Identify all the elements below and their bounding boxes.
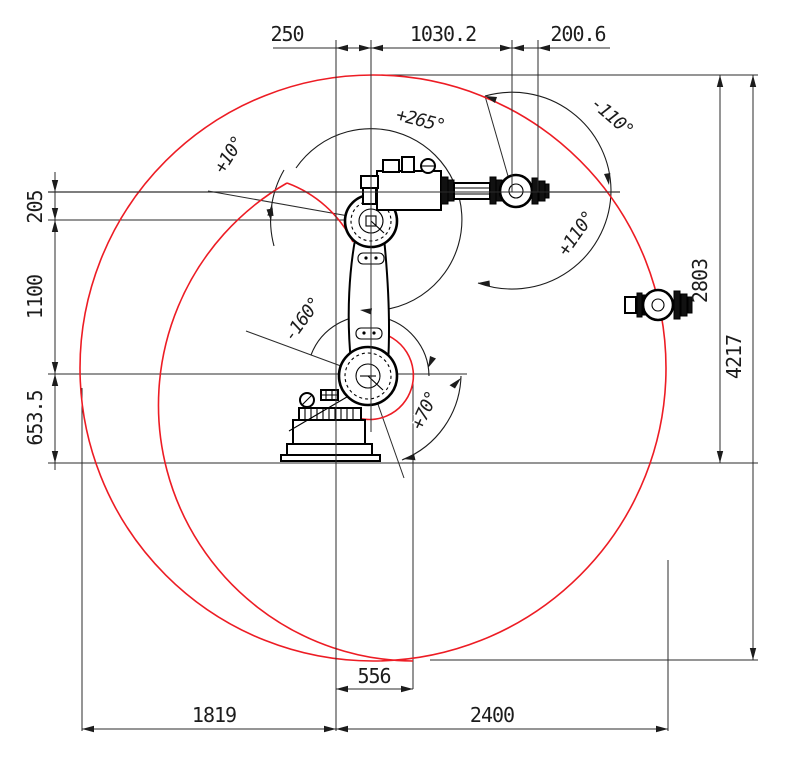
forearm-tube — [454, 183, 490, 199]
angle-plus110: +110° — [554, 208, 599, 260]
robot-work-envelope-diagram: 250 1030.2 200.6 205 1100 653.5 2803 421… — [0, 0, 800, 760]
wrist-joint — [500, 175, 532, 207]
dim-top-200: 200.6 — [550, 22, 605, 46]
dim-top-250: 250 — [270, 22, 303, 46]
detached-wrist — [625, 290, 692, 320]
dim-bottom-2400: 2400 — [470, 703, 514, 727]
arc-plus10 — [271, 170, 284, 246]
angle-arcs — [271, 92, 611, 460]
angle-plus265: +265° — [394, 105, 447, 137]
construction-lines — [48, 40, 758, 731]
arrow-plus70-top — [450, 378, 462, 389]
dim-right-4217: 4217 — [722, 335, 746, 379]
arrow-minus110-end — [604, 173, 610, 185]
dim-bottom-1819: 1819 — [192, 703, 236, 727]
centerlines-overlay — [48, 40, 620, 731]
upper-arm-assembly — [361, 157, 549, 210]
lower-arm-link — [349, 238, 389, 364]
angle-plus10: +10° — [210, 133, 249, 178]
dimension-arrows — [52, 45, 756, 732]
dim-left-205: 205 — [23, 190, 47, 223]
dim-left-1100: 1100 — [23, 275, 47, 319]
arrow-plus10-bottom — [267, 209, 273, 222]
arc-plus110 — [478, 190, 611, 289]
angle-minus110: -110° — [586, 93, 637, 141]
shoulder-joint — [339, 347, 397, 405]
angle-minus160: -160° — [280, 294, 326, 346]
dim-top-1030: 1030.2 — [410, 22, 476, 46]
dim-bottom-556: 556 — [357, 664, 390, 688]
tool-flange — [532, 178, 538, 204]
arrow-minus160 — [428, 356, 436, 368]
angle-labels: +10° +265° -110° +110° -160° +70° — [210, 93, 637, 433]
dim-left-653: 653.5 — [23, 390, 47, 445]
dim-right-2803: 2803 — [688, 259, 712, 303]
